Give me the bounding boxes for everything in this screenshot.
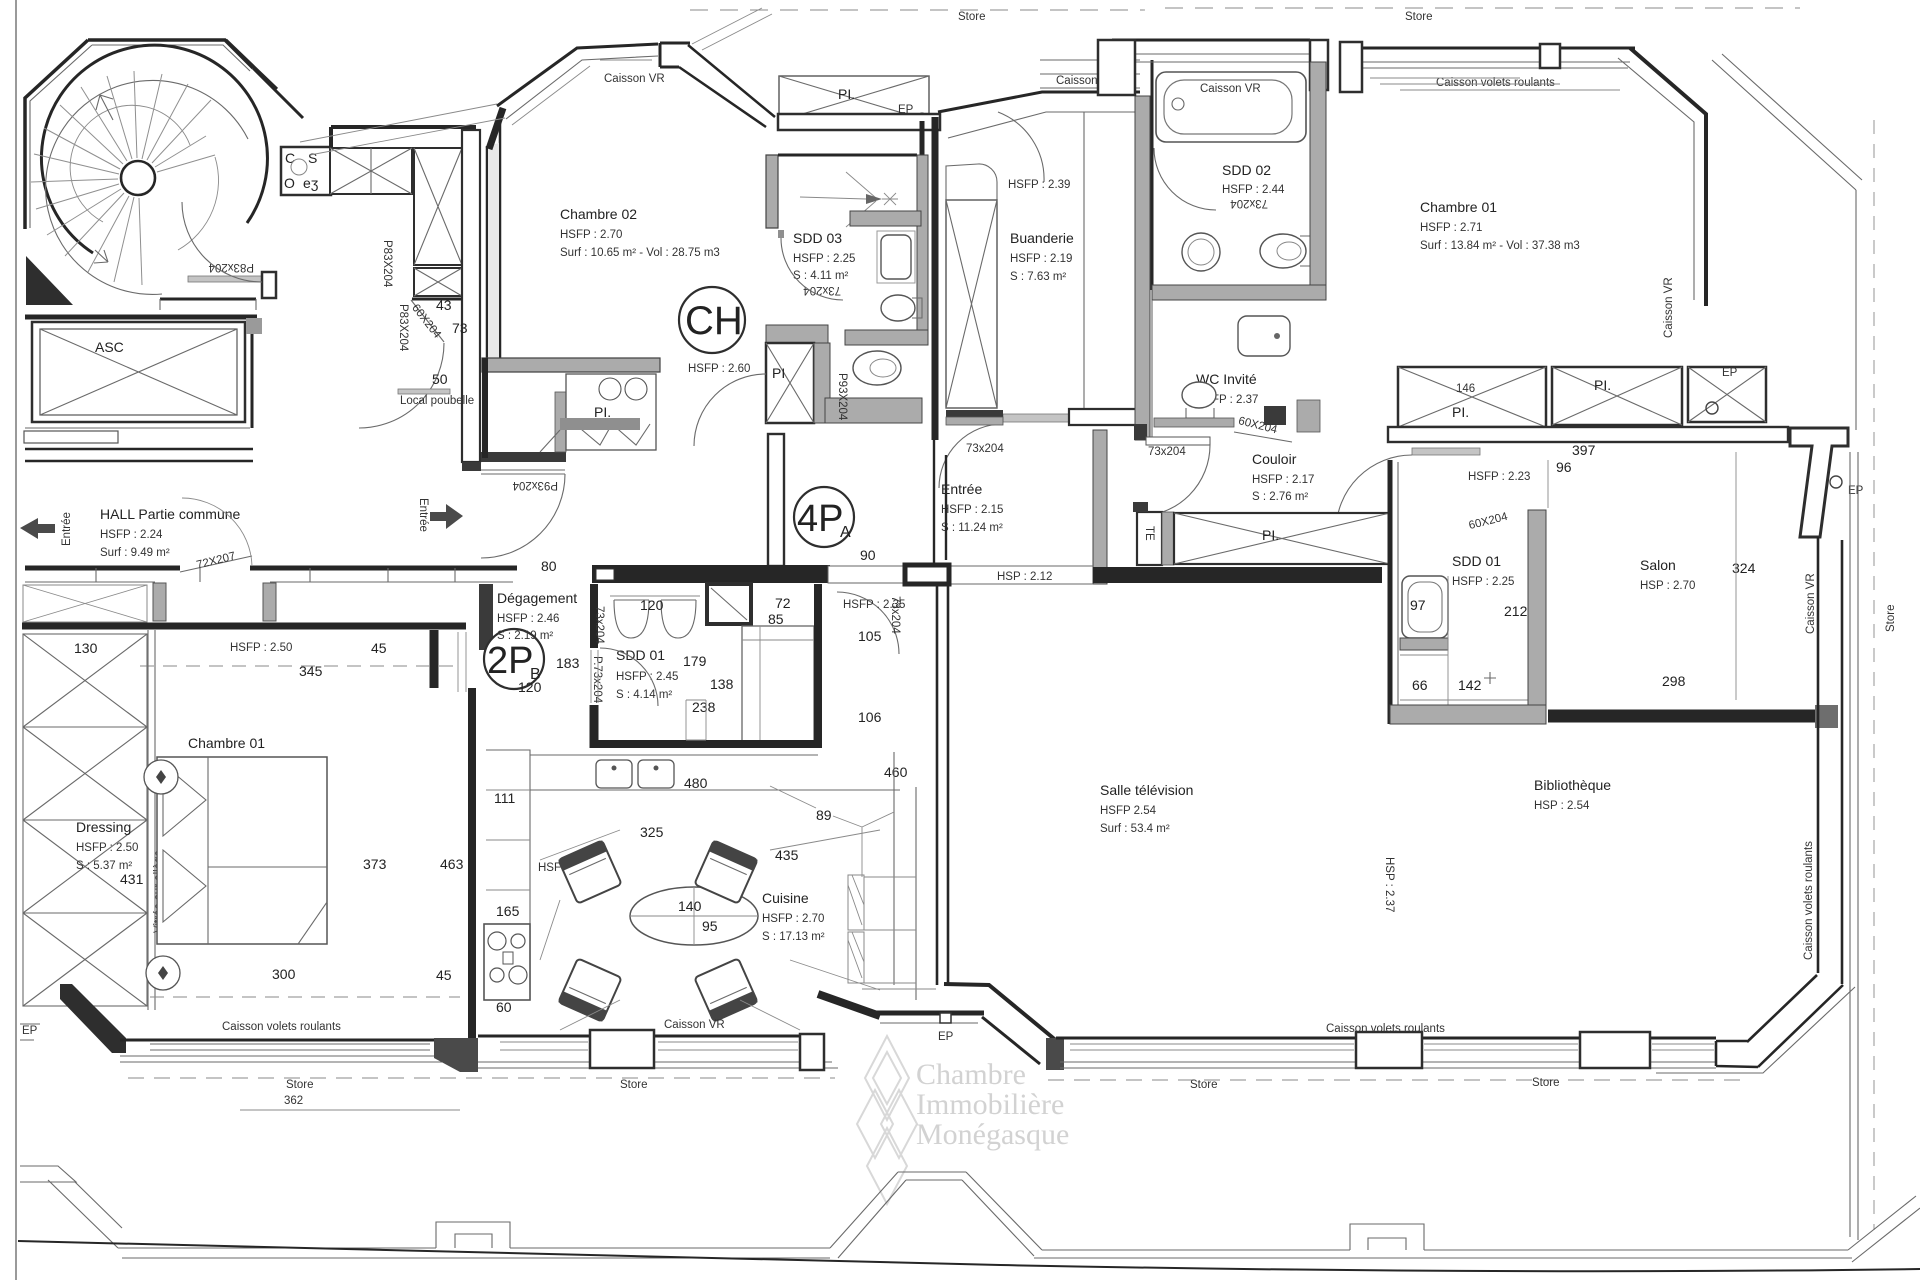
svg-text:Cuisine: Cuisine — [762, 890, 809, 906]
svg-text:Caisson volets roulants: Caisson volets roulants — [1436, 77, 1555, 89]
svg-text:142: 142 — [1458, 677, 1482, 693]
svg-text:HSFP : 2.15: HSFP : 2.15 — [941, 504, 1003, 516]
svg-text:S : 17.13 m²: S : 17.13 m² — [762, 931, 825, 943]
svg-text:Store: Store — [958, 11, 986, 23]
svg-text:140: 140 — [678, 898, 702, 914]
svg-text:80: 80 — [541, 558, 557, 574]
svg-text:PI.: PI. — [594, 404, 611, 420]
svg-text:SDD 01: SDD 01 — [616, 647, 665, 663]
svg-text:Entrée: Entrée — [61, 512, 73, 546]
svg-text:480: 480 — [684, 775, 708, 791]
svg-text:HSP : 2.54: HSP : 2.54 — [1534, 800, 1590, 812]
svg-text:Dégagement: Dégagement — [497, 590, 577, 606]
svg-text:SDD 01: SDD 01 — [1452, 553, 1501, 569]
svg-text:HSFP : 2.25: HSFP : 2.25 — [1452, 576, 1514, 588]
svg-text:HSFP : 2.50: HSFP : 2.50 — [76, 842, 138, 854]
svg-text:Caisson VR: Caisson VR — [1805, 573, 1817, 634]
svg-text:HSFP : 2.71: HSFP : 2.71 — [1420, 222, 1482, 234]
svg-text:146: 146 — [1456, 383, 1475, 395]
svg-text:HSP : 2.12: HSP : 2.12 — [997, 571, 1052, 583]
svg-text:eʒ: eʒ — [303, 175, 319, 191]
svg-text:300: 300 — [272, 966, 296, 982]
svg-text:Surf : 13.84 m² - Vol : 37.38: Surf : 13.84 m² - Vol : 37.38 m3 — [1420, 240, 1580, 252]
svg-text:HSFP : 2.46: HSFP : 2.46 — [497, 613, 559, 625]
svg-text:431: 431 — [120, 871, 144, 887]
svg-text:HSFP : 2.23: HSFP : 2.23 — [1468, 471, 1530, 483]
svg-text:HSFP : 2.39: HSFP : 2.39 — [1008, 179, 1070, 191]
svg-text:373: 373 — [363, 856, 387, 872]
svg-text:66: 66 — [1412, 677, 1428, 693]
svg-text:P83X204: P83X204 — [381, 240, 393, 288]
svg-text:4P: 4P — [797, 498, 843, 540]
svg-text:298: 298 — [1662, 673, 1686, 689]
svg-text:96: 96 — [1556, 459, 1572, 475]
svg-text:S : 4.11 m²: S : 4.11 m² — [793, 270, 849, 282]
svg-text:Chambre: Chambre — [916, 1058, 1026, 1091]
svg-text:165: 165 — [496, 903, 520, 919]
svg-text:HSP : 2.37: HSP : 2.37 — [1383, 857, 1395, 912]
svg-text:111: 111 — [494, 790, 515, 806]
svg-text:PI.: PI. — [838, 86, 855, 102]
svg-text:120: 120 — [640, 597, 664, 613]
svg-text:138: 138 — [710, 676, 734, 692]
svg-text:PI: PI — [772, 365, 785, 381]
svg-text:73x204: 73x204 — [1148, 446, 1186, 458]
svg-text:HSFP : 2.70: HSFP : 2.70 — [560, 229, 622, 241]
svg-text:324: 324 — [1732, 560, 1756, 576]
svg-text:HSFP : 2.70: HSFP : 2.70 — [762, 913, 824, 925]
svg-text:HSFP : 2.19: HSFP : 2.19 — [1010, 253, 1072, 265]
svg-text:Surf : 10.65 m² - Vol : 28.75: Surf : 10.65 m² - Vol : 28.75 m3 — [560, 247, 720, 259]
svg-text:73x204: 73x204 — [593, 606, 605, 644]
svg-text:Caisson VR: Caisson VR — [664, 1019, 725, 1031]
svg-text:Caisson volets roulants: Caisson volets roulants — [1326, 1023, 1445, 1035]
svg-text:Chambre 01: Chambre 01 — [1420, 199, 1497, 215]
svg-text:HSFP : 2.25: HSFP : 2.25 — [793, 253, 855, 265]
svg-text:90: 90 — [860, 547, 876, 563]
svg-text:PI.: PI. — [1452, 404, 1469, 420]
svg-text:Monégasque: Monégasque — [916, 1118, 1069, 1151]
svg-text:C: C — [285, 150, 295, 166]
svg-text:89: 89 — [816, 807, 832, 823]
svg-text:Caisson VR: Caisson VR — [1663, 277, 1675, 338]
svg-text:Caisson volets roulants: Caisson volets roulants — [1803, 841, 1815, 960]
svg-text:106: 106 — [858, 709, 882, 725]
svg-text:O: O — [284, 175, 295, 191]
svg-text:238: 238 — [692, 699, 716, 715]
svg-text:Chambre 02: Chambre 02 — [560, 206, 637, 222]
svg-text:95: 95 — [702, 918, 718, 934]
svg-text:43: 43 — [436, 297, 452, 313]
svg-text:Immobilière: Immobilière — [916, 1088, 1064, 1121]
svg-text:Salon: Salon — [1640, 557, 1676, 573]
svg-text:435: 435 — [775, 847, 799, 863]
svg-text:Caisson VR: Caisson VR — [1200, 83, 1261, 95]
svg-text:72: 72 — [775, 595, 791, 611]
svg-text:460: 460 — [884, 764, 908, 780]
svg-text:HSFP : 2.17: HSFP : 2.17 — [1252, 474, 1314, 486]
svg-text:HSFP : 2.35: HSFP : 2.35 — [843, 599, 905, 611]
svg-text:Surf : 53.4 m²: Surf : 53.4 m² — [1100, 823, 1170, 835]
svg-text:S : 2.19 m²: S : 2.19 m² — [497, 630, 553, 642]
svg-text:325: 325 — [640, 824, 664, 840]
svg-text:Store: Store — [286, 1079, 314, 1091]
svg-text:EP: EP — [22, 1025, 38, 1037]
svg-text:179: 179 — [683, 653, 707, 669]
svg-text:Store: Store — [1405, 11, 1433, 23]
svg-text:HSP : 2.70: HSP : 2.70 — [1640, 580, 1695, 592]
svg-text:P93X204: P93X204 — [836, 373, 848, 421]
svg-text:S : 4.14 m²: S : 4.14 m² — [616, 689, 672, 701]
svg-text:73: 73 — [452, 320, 468, 336]
svg-text:Store: Store — [1532, 1077, 1560, 1089]
svg-text:HSFP : 2.50: HSFP : 2.50 — [230, 642, 292, 654]
svg-text:105: 105 — [858, 628, 882, 644]
svg-text:463: 463 — [440, 856, 464, 872]
svg-text:60: 60 — [496, 999, 512, 1015]
svg-text:Store: Store — [1190, 1079, 1218, 1091]
svg-text:Couloir: Couloir — [1252, 451, 1297, 467]
svg-text:Salle télévision: Salle télévision — [1100, 782, 1193, 798]
svg-text:Caisson volets roulants: Caisson volets roulants — [222, 1021, 341, 1033]
svg-text:Dressing: Dressing — [76, 819, 131, 835]
svg-text:Entrée: Entrée — [417, 498, 429, 532]
svg-text:A: A — [840, 524, 851, 541]
svg-text:Buanderie: Buanderie — [1010, 230, 1074, 246]
svg-text:Caisson VR: Caisson VR — [604, 73, 665, 85]
svg-text:85: 85 — [768, 611, 784, 627]
svg-text:50: 50 — [432, 371, 448, 387]
svg-text:Bibliothèque: Bibliothèque — [1534, 777, 1611, 793]
svg-text:HSFP : 2.24: HSFP : 2.24 — [100, 529, 163, 541]
svg-text:120: 120 — [518, 679, 542, 695]
svg-text:212: 212 — [1504, 603, 1528, 619]
svg-text:P93x204: P93x204 — [512, 479, 558, 491]
svg-text:Surf : 9.49 m²: Surf : 9.49 m² — [100, 547, 170, 559]
svg-text:45: 45 — [371, 640, 387, 656]
svg-text:P83X204: P83X204 — [397, 304, 409, 352]
svg-text:73x204: 73x204 — [966, 443, 1004, 455]
svg-text:CH: CH — [685, 299, 743, 343]
svg-text:ASC: ASC — [95, 339, 124, 355]
svg-text:2P: 2P — [487, 640, 533, 682]
svg-text:362: 362 — [284, 1095, 303, 1107]
svg-text:P.73x204: P.73x204 — [591, 656, 603, 704]
svg-text:397: 397 — [1572, 442, 1596, 458]
svg-text:183: 183 — [556, 655, 580, 671]
svg-text:73x204: 73x204 — [1230, 197, 1268, 209]
svg-text:Local poubelle: Local poubelle — [400, 395, 474, 407]
svg-text:345: 345 — [299, 663, 323, 679]
svg-text:Entrée: Entrée — [941, 481, 982, 497]
svg-text:Store: Store — [620, 1079, 648, 1091]
svg-text:45: 45 — [436, 967, 452, 983]
svg-text:EP: EP — [1722, 367, 1738, 379]
svg-text:Store: Store — [1885, 605, 1897, 633]
svg-text:HSFP : 2.44: HSFP : 2.44 — [1222, 184, 1285, 196]
svg-text:PI.: PI. — [1594, 377, 1611, 393]
svg-text:HSFP : 2.60: HSFP : 2.60 — [688, 363, 750, 375]
svg-text:130: 130 — [74, 640, 98, 656]
svg-text:PI.: PI. — [1262, 527, 1279, 543]
svg-text:EP: EP — [938, 1031, 954, 1043]
svg-text:S: S — [308, 150, 317, 166]
svg-text:Chambre 01: Chambre 01 — [188, 735, 265, 751]
svg-text:S : 2.76 m²: S : 2.76 m² — [1252, 491, 1308, 503]
svg-text:97: 97 — [1410, 597, 1426, 613]
svg-text:SDD 02: SDD 02 — [1222, 162, 1271, 178]
svg-text:HSFP 2.54: HSFP 2.54 — [1100, 805, 1157, 817]
svg-text:SDD 03: SDD 03 — [793, 230, 842, 246]
svg-text:S : 7.63 m²: S : 7.63 m² — [1010, 271, 1066, 283]
svg-text:S : 11.24 m²: S : 11.24 m² — [941, 522, 1003, 534]
svg-text:TE: TE — [1143, 526, 1155, 541]
